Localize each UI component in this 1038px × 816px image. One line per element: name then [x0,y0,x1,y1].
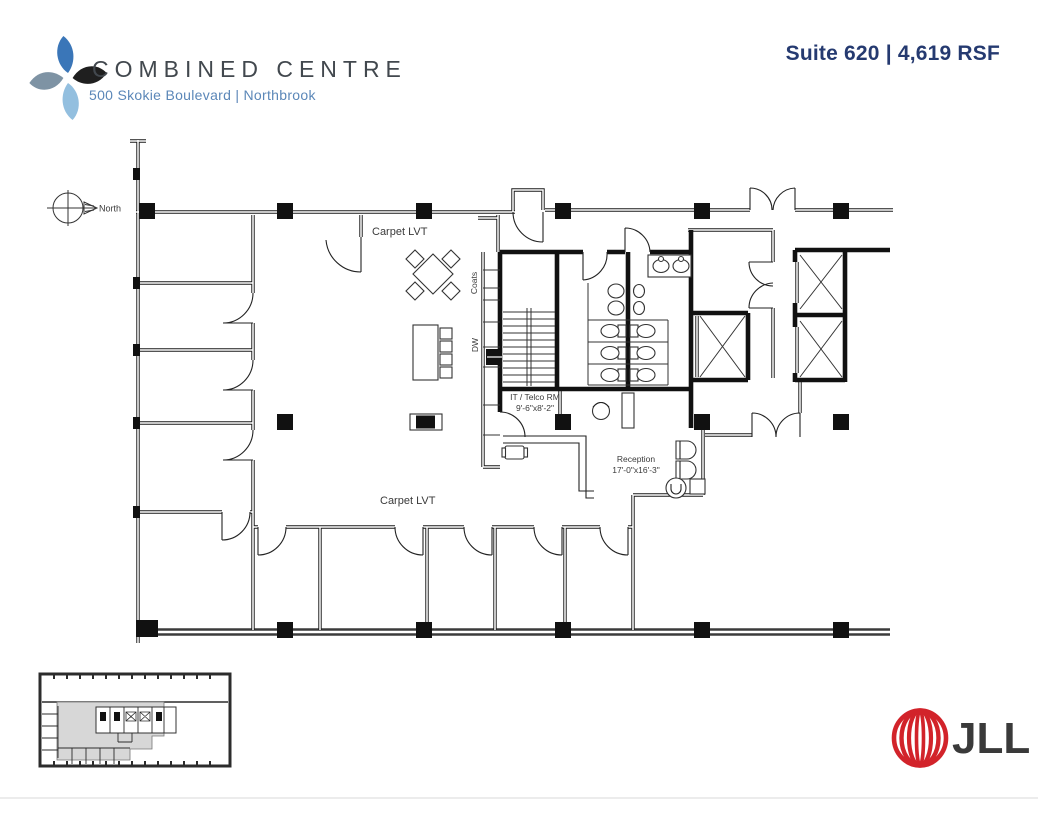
jll-wordmark: JLL [952,714,1030,763]
suite-info: Suite 620 | 4,619 RSF [786,42,1000,66]
jll-logo-icon [894,711,946,766]
reception-dims: 17'-0"x16'-3" [612,465,660,475]
flyer-page: North [0,0,1038,816]
dishwasher-label: DW [470,338,480,352]
restrooms [588,255,691,385]
floor-plan: Carpet LVT Carpet LVT Coats DW IT / Telc… [130,140,893,643]
page-bottom-rule [0,797,1038,799]
north-label: North [99,204,121,214]
floor-plan-svg: North [0,0,1038,816]
it-telco-room-dims: 9'-6"x8'-2" [516,403,554,413]
building-name: COMBINED CENTRE [92,56,407,83]
carpet-label-bottom: Carpet LVT [380,495,436,507]
reception-label: Reception [617,454,656,464]
stairs [503,308,555,386]
carpet-label-top: Carpet LVT [372,226,428,238]
key-plan [40,674,230,766]
doors [222,188,800,555]
jll-logo: JLL [894,711,1030,766]
columns [133,168,849,638]
it-telco-room-label: IT / Telco RM [510,392,560,402]
coats-label: Coats [469,272,479,294]
north-indicator: North [47,190,121,226]
building-address: 500 Skokie Boulevard | Northbrook [89,87,316,103]
